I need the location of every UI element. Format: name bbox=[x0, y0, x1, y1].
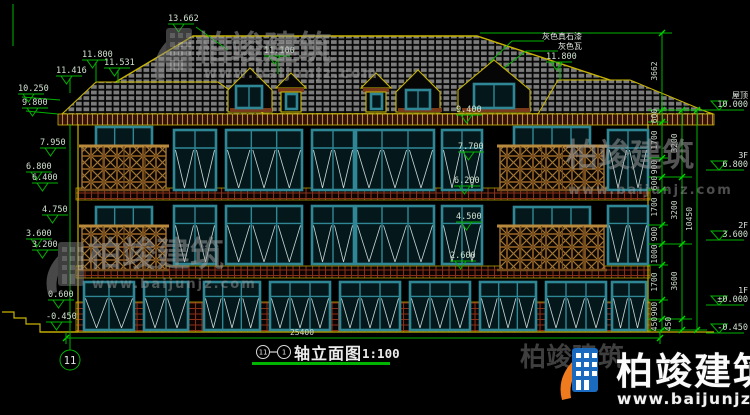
elev-label: 13.662 bbox=[168, 14, 199, 24]
window bbox=[174, 130, 216, 190]
dim-total-width: 25400 bbox=[290, 328, 314, 337]
axis-bubble: 11 bbox=[60, 350, 80, 370]
watermark-brand: 柏竣建筑 bbox=[88, 235, 224, 275]
window bbox=[410, 282, 470, 330]
note-roof-tile: 灰色瓦 bbox=[558, 41, 582, 51]
elev-label: 6.200 bbox=[454, 176, 480, 186]
elev-label: 7.950 bbox=[40, 138, 66, 148]
lower-right-roof bbox=[538, 80, 712, 114]
elev-label: 4.500 bbox=[456, 212, 482, 222]
watermark-brand: 柏竣建筑 bbox=[566, 136, 694, 174]
elev-label: 3.600 bbox=[26, 229, 52, 239]
watermark-brand: 柏竣建筑 bbox=[196, 29, 332, 69]
elev-label: 7.700 bbox=[458, 142, 484, 152]
dim-small: 600 bbox=[650, 109, 659, 124]
right-marker-2f: 2F 3.600 bbox=[706, 221, 748, 240]
facade bbox=[2, 84, 714, 332]
title-scale: 1:100 bbox=[362, 346, 400, 361]
watermark-url: www.baijunjz.com bbox=[92, 277, 257, 292]
watermark-brand: 柏竣建筑 bbox=[616, 350, 750, 393]
dim-floor: 3200 bbox=[670, 200, 679, 219]
svg-text:±0.000: ±0.000 bbox=[717, 295, 748, 305]
elev-label: 6.400 bbox=[32, 173, 58, 183]
title-axis-a: 11 bbox=[259, 349, 267, 357]
window bbox=[612, 282, 646, 330]
svg-text:11: 11 bbox=[64, 355, 77, 367]
window bbox=[236, 86, 262, 108]
dim-small: 900 bbox=[650, 302, 659, 317]
elevation-drawing: 600 1700 900 600 1700 900 1000 1700 900 … bbox=[0, 0, 750, 415]
dim-small: 1700 bbox=[650, 272, 659, 291]
drawing-title: 11 1 轴立面图 1:100 bbox=[252, 344, 400, 365]
right-marker-1f: 1F ±0.000 bbox=[706, 286, 748, 305]
dim-small: 1700 bbox=[650, 197, 659, 216]
svg-text:3.600: 3.600 bbox=[722, 230, 748, 240]
elev-label: 4.750 bbox=[42, 205, 68, 215]
window bbox=[286, 94, 297, 109]
watermark-url: www.baijunjz.com bbox=[617, 390, 750, 408]
note-roof-paint: 灰色真石漆 bbox=[542, 31, 582, 41]
watermark-bottom-logo: 柏竣建筑 www.baijunjz.com bbox=[561, 348, 750, 408]
window bbox=[270, 282, 330, 330]
right-marker-3f: 3F 6.800 bbox=[706, 151, 748, 170]
elev-label: 9.400 bbox=[456, 105, 482, 115]
svg-text:屋顶: 屋顶 bbox=[732, 91, 748, 100]
title-underline bbox=[252, 362, 390, 365]
elev-label: 11.800 bbox=[546, 52, 577, 62]
watermark-url: www.baijunjz.com bbox=[568, 183, 733, 198]
dim-roof-rise: 3662 bbox=[650, 61, 659, 80]
dim-floor: 450 bbox=[664, 317, 673, 332]
dim-floor: 3600 bbox=[670, 271, 679, 290]
dim-small: 450 bbox=[650, 317, 659, 332]
watermark-url: www.baijunjz.com bbox=[204, 66, 379, 82]
window bbox=[356, 206, 434, 264]
svg-text:10.000: 10.000 bbox=[717, 100, 748, 110]
elev-label: 11.531 bbox=[104, 58, 135, 68]
elev-label: 6.800 bbox=[26, 162, 52, 172]
svg-text:2F: 2F bbox=[738, 221, 748, 230]
dim-total-height: 10450 bbox=[685, 207, 694, 231]
elev-label: 9.800 bbox=[22, 98, 48, 108]
svg-text:6.800: 6.800 bbox=[722, 160, 748, 170]
window bbox=[312, 130, 354, 190]
window bbox=[96, 207, 152, 227]
window bbox=[480, 282, 536, 330]
window bbox=[546, 282, 606, 330]
elev-label: 2.600 bbox=[450, 251, 476, 261]
dim-small: 1000 bbox=[650, 244, 659, 263]
window bbox=[371, 94, 382, 109]
balcony-railing bbox=[497, 226, 607, 270]
elev-label: 11.416 bbox=[56, 66, 87, 76]
title-text: 轴立面图 bbox=[294, 344, 362, 363]
elev-label: -0.450 bbox=[46, 312, 77, 322]
dim-small: 900 bbox=[650, 227, 659, 242]
svg-text:1F: 1F bbox=[738, 286, 748, 295]
svg-text:3F: 3F bbox=[738, 151, 748, 160]
window bbox=[226, 130, 302, 190]
window bbox=[608, 206, 648, 264]
watermark-right: 柏竣建筑 www.baijunjz.com bbox=[566, 136, 733, 198]
window bbox=[312, 206, 354, 264]
window bbox=[514, 207, 590, 227]
window bbox=[340, 282, 400, 330]
elev-label: 3.200 bbox=[32, 240, 58, 250]
window bbox=[356, 130, 434, 190]
window bbox=[96, 127, 152, 147]
eave-fascia bbox=[58, 114, 714, 125]
window bbox=[406, 90, 430, 109]
elev-label: 10.250 bbox=[18, 84, 49, 94]
svg-text:-0.450: -0.450 bbox=[717, 323, 748, 333]
title-axis-b: 1 bbox=[282, 349, 286, 357]
balcony-railing bbox=[79, 146, 169, 190]
window bbox=[226, 206, 302, 264]
cad-elevation-screenshot: 600 1700 900 600 1700 900 1000 1700 900 … bbox=[0, 0, 750, 415]
right-marker-roof: 屋顶 10.000 bbox=[706, 91, 748, 110]
